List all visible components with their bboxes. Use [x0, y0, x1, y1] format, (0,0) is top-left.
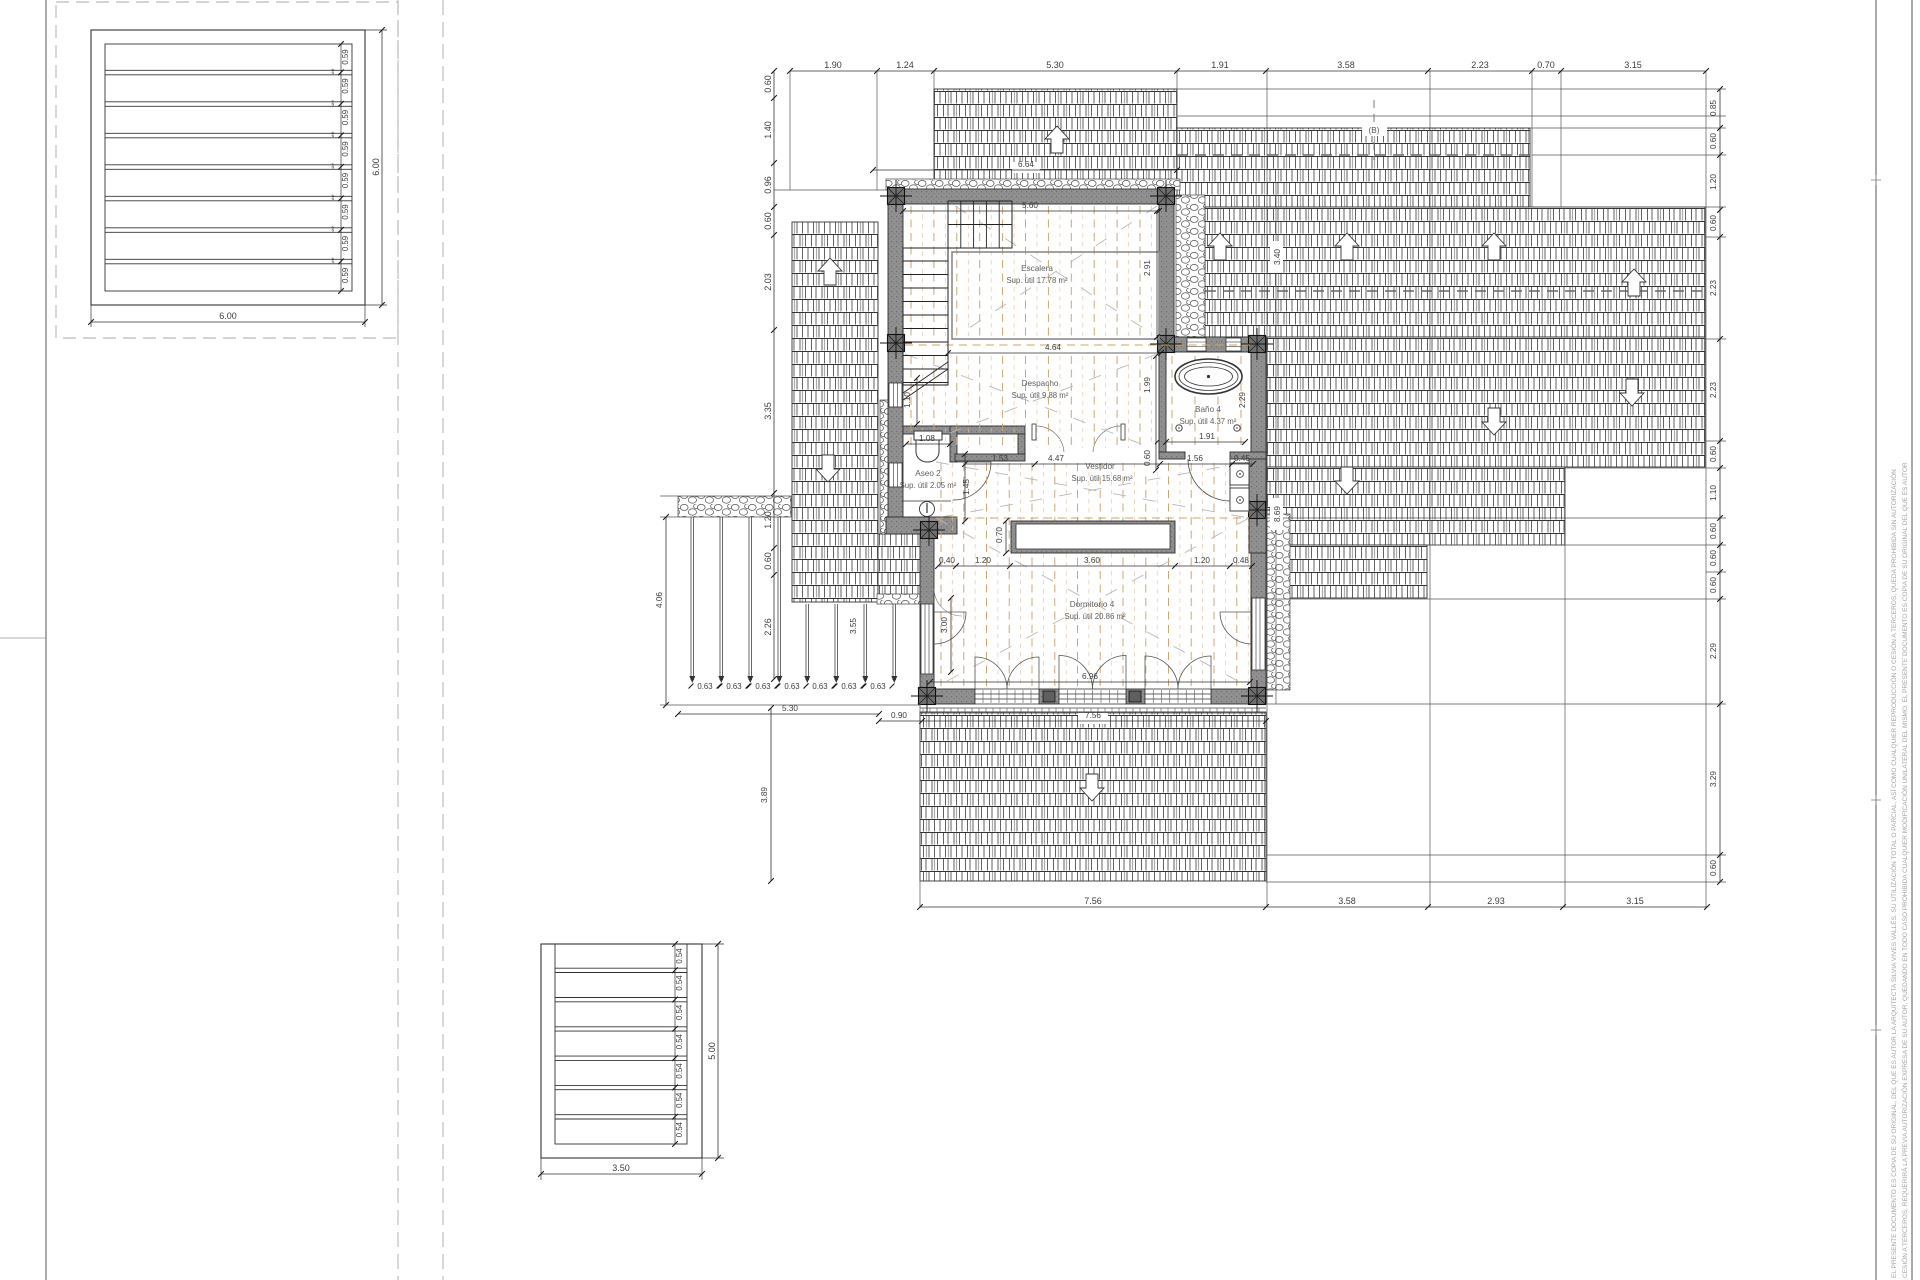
svg-text:2.29: 2.29 [1709, 643, 1718, 659]
svg-text:0.60: 0.60 [1709, 550, 1718, 566]
svg-text:0.59: 0.59 [341, 204, 350, 219]
svg-text:1.91: 1.91 [1211, 60, 1229, 70]
svg-text:0.54: 0.54 [675, 975, 684, 991]
svg-text:Sup. útil 4.37 m²: Sup. útil 4.37 m² [1180, 417, 1237, 426]
svg-text:0.54: 0.54 [675, 1121, 684, 1137]
svg-text:0.59: 0.59 [341, 110, 350, 125]
svg-text:Sup. útil 15.68 m²: Sup. útil 15.68 m² [1071, 474, 1133, 483]
svg-text:0,40: 0,40 [939, 556, 955, 565]
svg-text:0.60: 0.60 [1143, 450, 1152, 466]
svg-text:⌀⌀: ⌀⌀ [330, 100, 335, 106]
svg-text:Sup. útil 17.78 m²: Sup. útil 17.78 m² [1006, 276, 1068, 285]
svg-text:Sup. útil 2.05 m²: Sup. útil 2.05 m² [900, 481, 957, 490]
svg-text:5.60: 5.60 [1022, 201, 1038, 210]
svg-text:1.20: 1.20 [1194, 556, 1210, 565]
svg-text:0.60: 0.60 [763, 552, 773, 570]
svg-text:0.54: 0.54 [675, 1033, 684, 1049]
svg-text:1.99: 1.99 [1143, 377, 1152, 393]
svg-text:0.60: 0.60 [1709, 523, 1718, 539]
svg-text:3.35: 3.35 [763, 402, 773, 420]
svg-text:3.50: 3.50 [612, 1163, 630, 1173]
svg-text:⌀⌀: ⌀⌀ [330, 226, 335, 232]
svg-text:2.29: 2.29 [1238, 392, 1247, 408]
svg-text:6.00: 6.00 [219, 311, 237, 321]
svg-text:0.59: 0.59 [341, 49, 350, 64]
svg-text:Aseo 2: Aseo 2 [915, 469, 941, 478]
svg-text:0.59: 0.59 [341, 173, 350, 188]
svg-text:(B): (B) [1369, 126, 1380, 135]
svg-text:0.48: 0.48 [1233, 556, 1249, 565]
svg-text:6.96: 6.96 [1082, 672, 1098, 681]
svg-text:1.53: 1.53 [992, 454, 1008, 463]
svg-text:2.91: 2.91 [1143, 260, 1152, 276]
svg-text:0.63: 0.63 [726, 682, 741, 691]
svg-text:0.54: 0.54 [675, 1004, 684, 1020]
svg-text:3.89: 3.89 [760, 787, 769, 803]
svg-text:1.90: 1.90 [824, 60, 842, 70]
svg-text:0.63: 0.63 [784, 682, 799, 691]
svg-text:4.47: 4.47 [1048, 454, 1064, 463]
svg-text:5.30: 5.30 [1046, 60, 1064, 70]
svg-text:2.23: 2.23 [1471, 60, 1489, 70]
svg-text:CESIÓN A TERCEROS, REQUERIRÁ L: CESIÓN A TERCEROS, REQUERIRÁ LA PREVIA A… [1900, 462, 1909, 1278]
svg-text:⌀⌀: ⌀⌀ [330, 163, 335, 169]
svg-text:4.06: 4.06 [655, 592, 664, 608]
svg-text:1.24: 1.24 [896, 60, 914, 70]
svg-text:0.59: 0.59 [341, 141, 350, 156]
svg-text:0.63: 0.63 [870, 682, 885, 691]
svg-text:3.60: 3.60 [1084, 556, 1100, 565]
svg-text:3.58: 3.58 [1337, 60, 1355, 70]
svg-text:3.55: 3.55 [849, 618, 858, 634]
svg-text:0.63: 0.63 [755, 682, 770, 691]
svg-text:1.45: 1.45 [962, 479, 971, 495]
svg-text:0.54: 0.54 [675, 1063, 684, 1079]
svg-text:EL PRESENTE DOCUMENTO ES COPIA: EL PRESENTE DOCUMENTO ES COPIA DE SU ORI… [1889, 469, 1898, 1278]
svg-text:0.60: 0.60 [763, 75, 773, 93]
svg-text:1.56: 1.56 [1187, 454, 1203, 463]
svg-text:1.40: 1.40 [763, 121, 773, 139]
svg-text:8.69: 8.69 [1273, 506, 1282, 522]
svg-text:Vestidor: Vestidor [1085, 462, 1115, 471]
svg-text:0.60: 0.60 [1709, 215, 1718, 231]
svg-text:Escalera: Escalera [1021, 264, 1053, 273]
svg-text:0.60: 0.60 [1709, 860, 1718, 876]
svg-text:⌀⌀: ⌀⌀ [330, 257, 335, 263]
svg-text:3.40: 3.40 [1273, 249, 1282, 265]
svg-text:0.54: 0.54 [675, 948, 684, 964]
svg-text:0.60: 0.60 [1709, 577, 1718, 593]
svg-text:Baño 4: Baño 4 [1195, 405, 1221, 414]
svg-text:0.90: 0.90 [891, 711, 907, 720]
svg-text:0.96: 0.96 [763, 176, 773, 194]
svg-text:3.29: 3.29 [1709, 771, 1718, 787]
svg-text:2.23: 2.23 [1709, 382, 1718, 398]
svg-text:Dormitorio 4: Dormitorio 4 [1070, 600, 1115, 609]
svg-text:2.23: 2.23 [1709, 280, 1718, 296]
svg-text:6.64: 6.64 [1018, 160, 1034, 169]
svg-text:0.85: 0.85 [1709, 100, 1718, 116]
svg-text:3.58: 3.58 [1338, 896, 1356, 906]
svg-text:0.63: 0.63 [697, 682, 712, 691]
svg-text:1.91: 1.91 [1199, 432, 1215, 441]
svg-text:0.59: 0.59 [341, 236, 350, 251]
svg-text:0.59: 0.59 [341, 268, 350, 283]
svg-text:7.56: 7.56 [1085, 711, 1101, 720]
svg-text:⌀⌀: ⌀⌀ [330, 131, 335, 137]
svg-text:7.56: 7.56 [1084, 896, 1102, 906]
svg-text:1.20: 1.20 [975, 556, 991, 565]
svg-text:1.10: 1.10 [1709, 485, 1718, 501]
svg-text:3.00: 3.00 [940, 617, 949, 633]
svg-text:0.70: 0.70 [1537, 60, 1555, 70]
svg-text:0.60: 0.60 [1709, 133, 1718, 149]
svg-text:4.64: 4.64 [1045, 343, 1061, 352]
svg-text:0.63: 0.63 [812, 682, 827, 691]
svg-text:1.20: 1.20 [1709, 174, 1718, 190]
svg-text:2.26: 2.26 [763, 618, 773, 636]
svg-text:5.30: 5.30 [782, 704, 798, 713]
svg-text:3.15: 3.15 [1626, 896, 1644, 906]
svg-text:2.93: 2.93 [1487, 896, 1505, 906]
svg-text:5.00: 5.00 [707, 1042, 717, 1060]
svg-text:1.08: 1.08 [919, 434, 935, 443]
svg-text:Sup. útil 9.88 m²: Sup. útil 9.88 m² [1012, 391, 1069, 400]
svg-text:1.10: 1.10 [903, 392, 912, 408]
svg-text:⌀⌀: ⌀⌀ [330, 194, 335, 200]
svg-text:0.60: 0.60 [1709, 446, 1718, 462]
svg-text:0.70: 0.70 [995, 527, 1004, 543]
svg-text:1.20: 1.20 [763, 511, 773, 529]
svg-text:⌀⌀: ⌀⌀ [330, 68, 335, 74]
svg-text:Despacho: Despacho [1022, 379, 1059, 388]
svg-text:0.60: 0.60 [763, 212, 773, 230]
svg-text:0.59: 0.59 [341, 78, 350, 93]
svg-text:0.45: 0.45 [1234, 454, 1250, 463]
svg-text:2.03: 2.03 [763, 273, 773, 291]
svg-text:0.63: 0.63 [841, 682, 856, 691]
svg-text:6.00: 6.00 [371, 158, 381, 176]
svg-text:Sup. útil 20.86 m²: Sup. útil 20.86 m² [1064, 612, 1126, 621]
svg-text:3.15: 3.15 [1624, 60, 1642, 70]
svg-text:0.54: 0.54 [675, 1092, 684, 1108]
